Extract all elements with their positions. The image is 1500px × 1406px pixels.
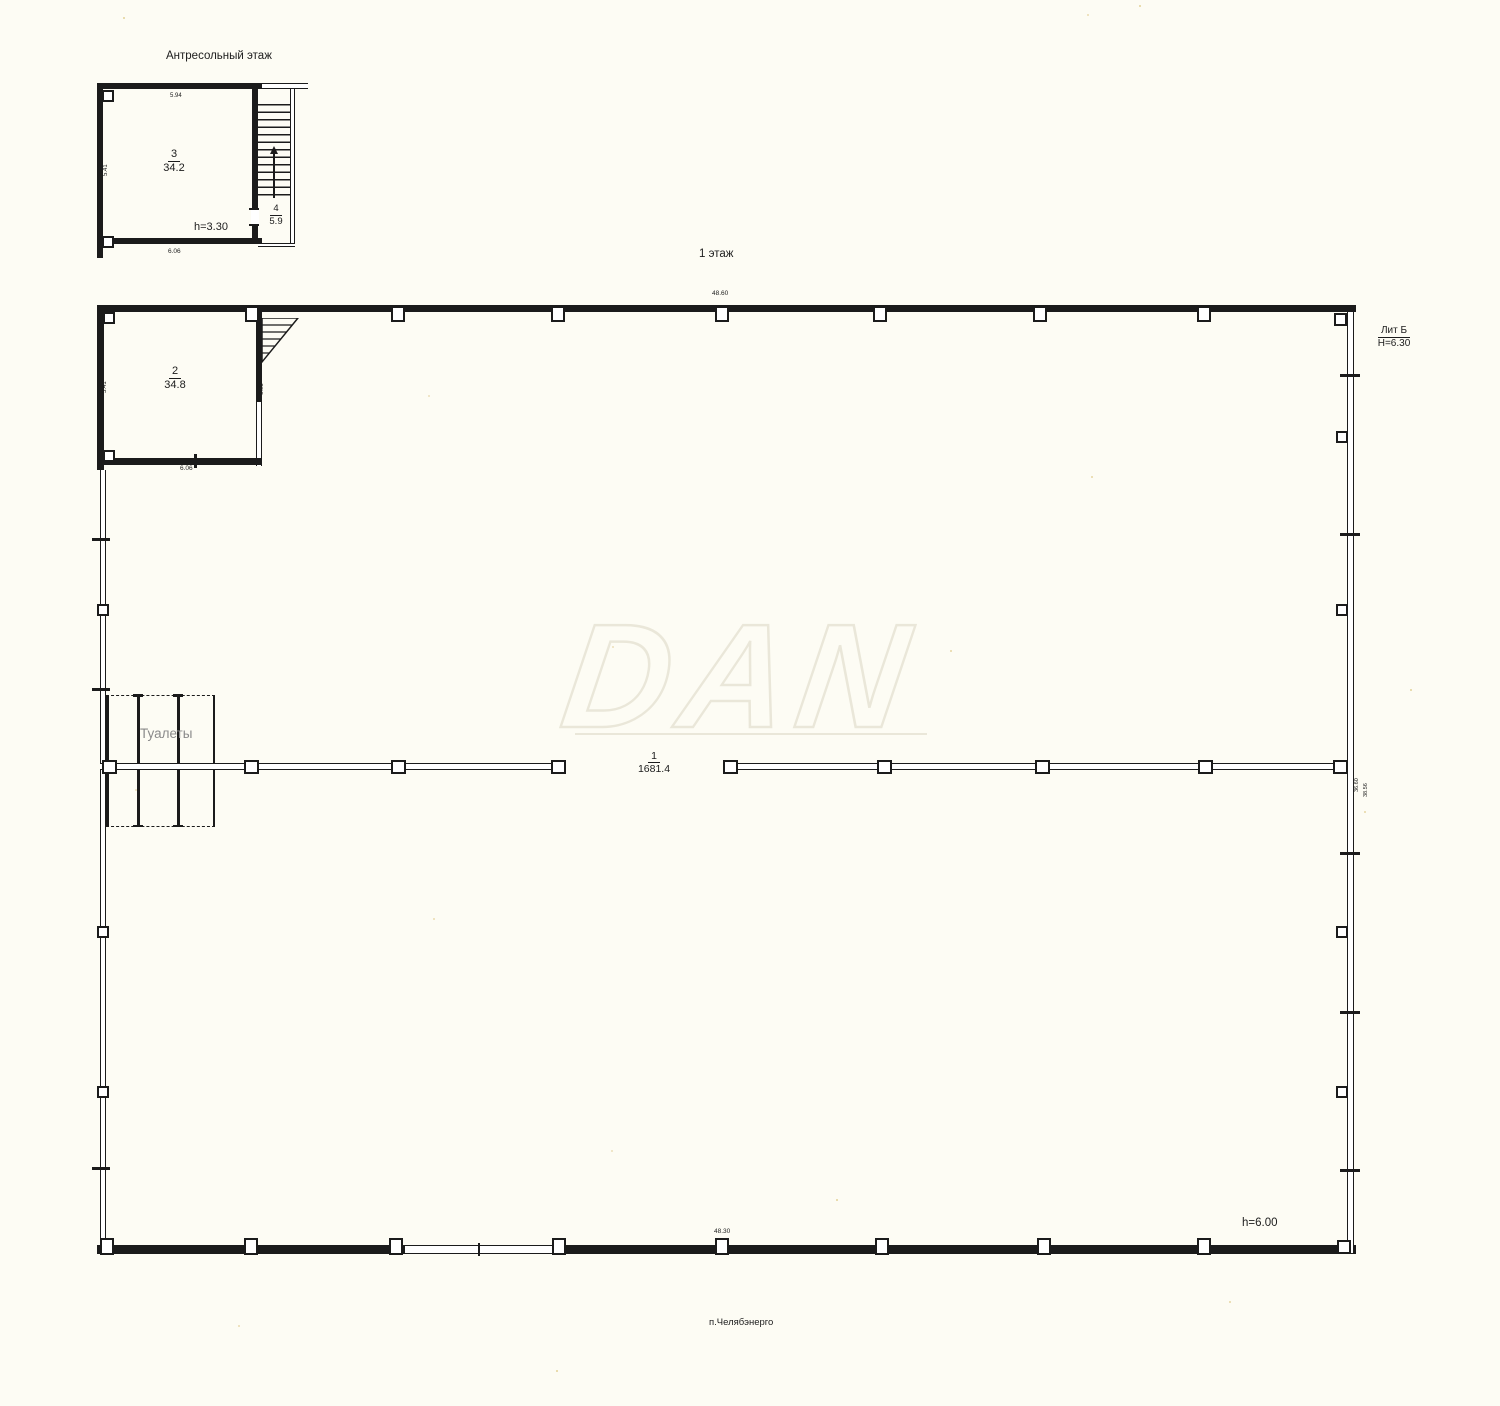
liter-name: Лит Б	[1378, 325, 1410, 338]
floor-plan-page: DAN Антресольный этаж 3 34.2 4 5.9 h=3.3…	[0, 0, 1500, 1406]
floor1-dim-right-inner: 36.60	[1354, 778, 1360, 792]
opening-divider-tick	[478, 1243, 480, 1256]
column	[875, 1238, 889, 1255]
mezz-room4-door-tick	[249, 224, 259, 226]
room2-dim-top: 5.94	[170, 308, 182, 315]
column	[715, 1238, 729, 1255]
mezz-corner-column	[102, 90, 114, 102]
column	[1037, 1238, 1051, 1255]
toilet-partition	[177, 695, 180, 827]
mezz-corner-column	[102, 236, 114, 248]
paper-specks	[0, 0, 2, 2]
floor1-dim-right-outer: 38.56	[1363, 783, 1369, 797]
mezz-bottom-wall	[97, 238, 262, 244]
mezz-stair-shaft-right-wall	[290, 89, 295, 247]
column	[1336, 431, 1348, 443]
floor1-title: 1 этаж	[699, 248, 733, 261]
mezz-dim-left: 5.41	[103, 164, 110, 176]
column	[100, 1238, 114, 1255]
column	[1198, 760, 1213, 774]
column	[1336, 604, 1348, 616]
column	[1033, 306, 1047, 322]
room-area: 1681.4	[638, 763, 670, 776]
room2-dim-left: 5.41	[102, 381, 109, 393]
column	[97, 926, 109, 938]
column	[103, 450, 115, 462]
column	[97, 604, 109, 616]
room-number: 4	[270, 204, 281, 216]
stair-direction-arrow-icon	[270, 146, 278, 154]
room-area: 5.9	[269, 216, 282, 227]
mezz-top-wall	[97, 83, 262, 89]
wall-tick	[1340, 1011, 1360, 1014]
partition-cap	[133, 825, 143, 828]
column	[245, 306, 259, 322]
floor1-right-wall	[1347, 312, 1354, 1253]
column	[1035, 760, 1050, 774]
partition-cap	[173, 694, 183, 697]
floor1-left-wall	[100, 470, 106, 1253]
column	[873, 306, 887, 322]
column	[391, 760, 406, 774]
wall-tick	[92, 1167, 110, 1170]
mezz-room3-label: 3 34.2	[156, 148, 192, 175]
interior-wall-left-segment	[100, 763, 565, 770]
column	[551, 306, 565, 322]
column	[723, 760, 738, 774]
floor1-dim-bottom: 48.30	[714, 1228, 730, 1235]
wall-tick	[194, 454, 197, 468]
toilet-partition	[137, 695, 140, 827]
floor1-stair-symbol	[262, 318, 300, 364]
address-label: п.Челябэнерго	[709, 1318, 773, 1328]
room-number: 2	[169, 365, 181, 379]
mezz-stair-divider	[273, 148, 275, 198]
wall-tick	[1340, 533, 1360, 536]
mezz-top-wall-extension	[262, 83, 308, 89]
toilet-partition	[213, 695, 216, 827]
mezzanine-title: Антресольный этаж	[166, 50, 272, 63]
column	[391, 306, 405, 322]
wall-tick	[1340, 852, 1360, 855]
watermark-underline	[575, 733, 927, 735]
room2-dim-right: 6.05	[259, 383, 266, 395]
column	[1197, 1238, 1211, 1255]
dan-watermark: DAN	[553, 592, 928, 762]
column	[389, 1238, 403, 1255]
floor1-height-label: h=6.00	[1242, 1217, 1278, 1230]
column	[244, 1238, 258, 1255]
hall-label: 1 1681.4	[633, 750, 675, 776]
mezz-stair-shaft-bottom-wall	[258, 243, 295, 247]
room-number: 3	[168, 148, 180, 162]
room-number: 1	[648, 750, 660, 763]
room2-bottom-wall	[97, 458, 262, 465]
wall-tick	[92, 688, 110, 691]
column	[715, 306, 729, 322]
wall-tick	[1340, 374, 1360, 377]
column	[552, 1238, 566, 1255]
mezz-dim-top: 5.94	[170, 93, 182, 100]
column	[103, 312, 115, 324]
partition-cap	[133, 694, 143, 697]
column	[877, 760, 892, 774]
wall-tick	[1340, 1169, 1360, 1172]
toilets-label: Туалеты	[140, 727, 192, 742]
partition-cap	[173, 825, 183, 828]
mezz-room4-label: 4 5.9	[264, 204, 288, 227]
liter-height: H=6.30	[1378, 338, 1411, 350]
mezz-height-label: h=3.30	[194, 221, 228, 233]
column	[551, 760, 566, 774]
room2-label: 2 34.8	[156, 365, 194, 392]
column	[1197, 306, 1211, 322]
column	[1337, 1240, 1351, 1254]
column	[1333, 760, 1348, 774]
mezz-room4-door-tick	[249, 208, 259, 210]
column	[97, 1086, 109, 1098]
room-area: 34.2	[163, 162, 184, 175]
liter-label: Лит Б H=6.30	[1372, 325, 1416, 350]
column	[102, 760, 117, 774]
column	[1336, 926, 1348, 938]
toilets-block	[106, 695, 215, 827]
wall-tick	[92, 538, 110, 541]
mezz-dim-bottom: 6.06	[168, 248, 181, 255]
room-area: 34.8	[164, 379, 185, 392]
room2-right-wall-lower	[256, 402, 262, 466]
column	[1336, 1086, 1348, 1098]
room2-dim-bottom: 6.06	[180, 465, 193, 472]
floor1-dim-top: 48.60	[712, 290, 728, 297]
column	[244, 760, 259, 774]
column	[1334, 313, 1347, 326]
